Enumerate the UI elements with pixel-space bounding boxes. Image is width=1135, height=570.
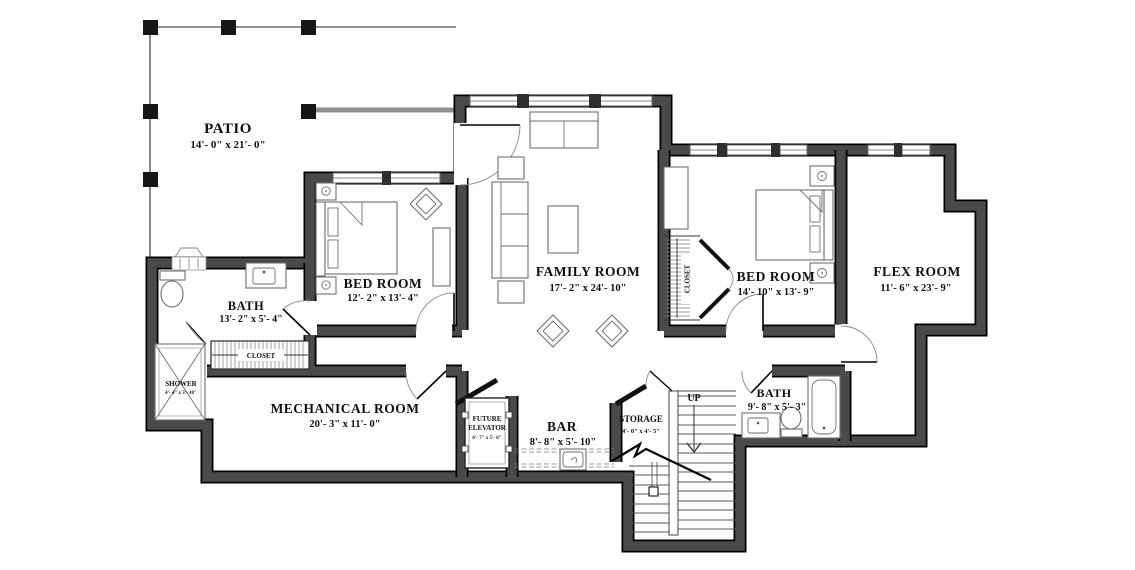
- bath-right-label: BATH: [756, 386, 791, 400]
- family-room-furniture: [492, 112, 628, 347]
- shower-label: SHOWER: [165, 380, 197, 388]
- nightstand-icon: [810, 166, 834, 186]
- sofa-icon: [492, 182, 528, 278]
- storage-room: [616, 371, 672, 404]
- chair-icon: [537, 315, 569, 347]
- up-arrow-icon: [687, 405, 701, 452]
- bedroom-left-door: [416, 293, 454, 337]
- end-table-icon: [498, 281, 524, 303]
- bath-right-dims: 9'- 8" x 5'- 3": [748, 402, 806, 413]
- elevator-label-line1: FUTURE: [473, 415, 502, 423]
- bar-area: [514, 449, 614, 470]
- bathtub-icon: [808, 376, 840, 438]
- bath-left-patio-doorway: [172, 248, 206, 270]
- family-room-windows: [470, 94, 652, 108]
- dresser-icon: [433, 228, 450, 286]
- floor-plan: PATIO 14'- 0" x 21'- 0" BED ROOM 12'- 2"…: [0, 0, 1135, 570]
- patio-post: [301, 104, 316, 119]
- newel-post: [649, 487, 658, 496]
- elevator-dims: 6'- 7" x 5'- 6": [472, 436, 501, 441]
- bedroom-left-dims: 12'- 2" x 13'- 4": [347, 293, 419, 304]
- bedroom-right-dims: 14'- 10" x 13'- 9": [738, 287, 815, 298]
- shower-icon: [155, 322, 206, 420]
- bedroom-right-windows: [690, 143, 807, 157]
- toilet-icon: [160, 271, 185, 307]
- storage-dims: 4'- 0" x 4'- 5": [622, 428, 660, 435]
- chair-icon: [410, 188, 442, 220]
- nightstand-icon: [316, 277, 336, 294]
- closet-right-label: CLOSET: [684, 264, 692, 293]
- closet-left-label: CLOSET: [247, 352, 276, 360]
- bath-left-label: BATH: [228, 299, 265, 313]
- bath-left-door: [283, 301, 317, 335]
- flex-room-label: FLEX ROOM: [873, 264, 960, 279]
- sofa-icon: [530, 112, 598, 148]
- chair-icon: [596, 315, 628, 347]
- flex-room-dims: 11'- 6" x 23'- 9": [880, 283, 951, 294]
- nightstand-icon: [316, 183, 336, 200]
- patio-label: PATIO: [204, 121, 252, 137]
- mechanical-room-dims: 20'- 3" x 11'- 0": [309, 419, 380, 430]
- sink-vanity-icon: [246, 263, 286, 288]
- patio-post: [301, 20, 316, 35]
- stairs-up-label: UP: [687, 393, 700, 404]
- bedroom-left-windows: [333, 171, 440, 185]
- bar-sink-icon: [560, 449, 586, 470]
- bed-icon: [316, 202, 397, 276]
- staircase: [612, 391, 736, 535]
- storage-label: STORAGE: [619, 414, 663, 424]
- bedroom-right-door: [726, 294, 763, 337]
- end-table-icon: [498, 157, 524, 179]
- mechanical-room-door: [406, 366, 446, 399]
- bath-left-dims: 13'- 2" x 5'- 4": [219, 314, 282, 325]
- sink-vanity-icon: [742, 413, 780, 438]
- bedroom-left-label: BED ROOM: [344, 276, 423, 291]
- flex-room-windows: [868, 143, 930, 157]
- bar-label: BAR: [547, 419, 577, 434]
- patio-post: [143, 104, 158, 119]
- closet-right: [664, 236, 733, 320]
- patio-post: [143, 20, 158, 35]
- patio-post: [221, 20, 236, 35]
- bed-icon: [756, 190, 833, 260]
- shower-dims: 4'- 4" x 3'- 10": [165, 391, 197, 396]
- flex-room-door: [835, 325, 877, 363]
- dresser-icon: [664, 167, 688, 229]
- bedroom-right-label: BED ROOM: [737, 269, 816, 284]
- patio-post: [143, 172, 158, 187]
- family-room-dims: 17'- 2" x 24'- 10": [550, 283, 627, 294]
- elevator-label-line2: ELEVATOR: [468, 424, 507, 432]
- bath-left-fixtures: [155, 263, 309, 420]
- bar-dims: 8'- 8" x 5'- 10": [530, 437, 597, 448]
- coffee-table-icon: [548, 206, 578, 253]
- patio-dims: 14'- 0" x 21'- 0": [190, 139, 265, 151]
- floor-plan-canvas: PATIO 14'- 0" x 21'- 0" BED ROOM 12'- 2"…: [0, 0, 1135, 570]
- mechanical-room-label: MECHANICAL ROOM: [271, 401, 420, 416]
- family-room-label: FAMILY ROOM: [536, 264, 640, 279]
